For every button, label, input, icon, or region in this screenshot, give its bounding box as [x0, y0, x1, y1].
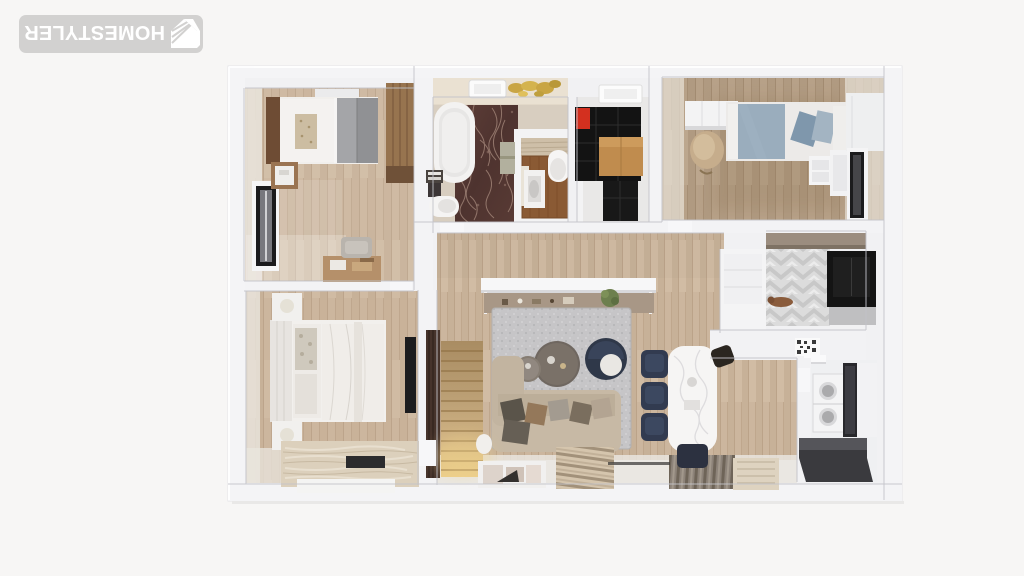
svg-text:HOMESTYLER: HOMESTYLER	[24, 21, 165, 43]
